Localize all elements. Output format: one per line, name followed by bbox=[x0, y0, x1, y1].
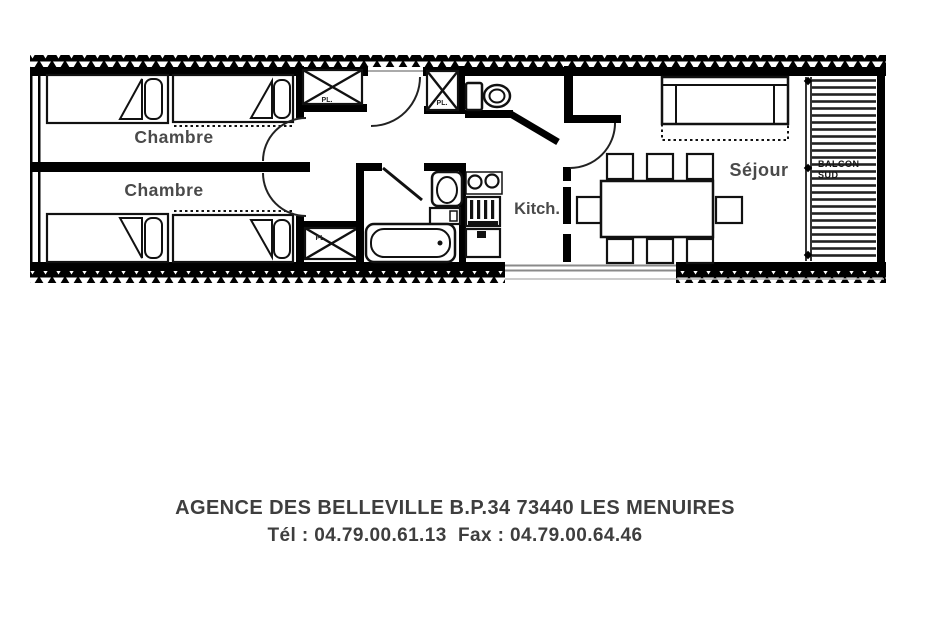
chair bbox=[647, 154, 673, 179]
chair bbox=[607, 154, 633, 179]
kitchen: Kitch. bbox=[466, 167, 571, 262]
closet-top-left: PL. bbox=[297, 70, 367, 112]
bed-icon bbox=[47, 214, 168, 262]
table bbox=[601, 181, 713, 237]
bathroom bbox=[356, 163, 466, 262]
agency-address: AGENCE DES BELLEVILLE B.P.34 73440 LES M… bbox=[0, 497, 925, 520]
door-arc bbox=[263, 173, 306, 216]
bedroom-top: Chambre bbox=[47, 75, 293, 147]
chair bbox=[687, 239, 713, 263]
closet-bottom: PL. bbox=[297, 221, 364, 259]
closet-label: PL. bbox=[322, 97, 333, 104]
closet-top-right: PL. bbox=[424, 66, 465, 114]
entry-door-arc bbox=[371, 77, 420, 126]
bathtub-icon bbox=[366, 224, 455, 262]
bedroom-bottom-label: Chambre bbox=[124, 180, 203, 200]
kitchen-label: Kitch. bbox=[514, 200, 560, 218]
living-room-label: Séjour bbox=[729, 160, 788, 180]
living-room: Séjour bbox=[577, 77, 789, 263]
bed-icon bbox=[47, 75, 168, 123]
bedroom-top-label: Chambre bbox=[134, 127, 213, 147]
door-arc bbox=[263, 118, 306, 161]
balcony: BALCON SUD bbox=[804, 77, 876, 261]
sink-burners-icon bbox=[466, 172, 502, 194]
door-leaf bbox=[383, 168, 422, 200]
balcony-decking bbox=[812, 77, 876, 261]
page: Chambre Chambre PL. bbox=[0, 0, 940, 627]
toilet-icon bbox=[466, 83, 510, 110]
wc bbox=[465, 83, 558, 142]
entry-hall bbox=[564, 66, 621, 168]
sofa-icon bbox=[662, 77, 788, 140]
chair bbox=[607, 239, 633, 263]
closet-label: PL. bbox=[437, 100, 448, 107]
stove-icon bbox=[466, 197, 500, 226]
floor-plan: Chambre Chambre PL. bbox=[0, 0, 940, 360]
fridge-icon bbox=[466, 229, 500, 257]
agency-phone-fax: Tél : 04.79.00.61.13 Fax : 04.79.00.64.4… bbox=[0, 525, 925, 547]
balcony-label-line1: BALCON bbox=[818, 159, 860, 169]
chair bbox=[716, 197, 742, 223]
closet-label: PL. bbox=[316, 235, 327, 242]
bidet-icon bbox=[430, 208, 460, 224]
chair bbox=[577, 197, 601, 223]
bed-icon bbox=[173, 211, 293, 262]
chair bbox=[687, 154, 713, 179]
bed-icon bbox=[173, 75, 293, 126]
balcony-label-line2: SUD bbox=[818, 170, 839, 180]
footer: AGENCE DES BELLEVILLE B.P.34 73440 LES M… bbox=[0, 497, 925, 547]
chair bbox=[647, 239, 673, 263]
dining-table bbox=[577, 154, 742, 263]
bedroom-bottom: Chambre bbox=[47, 180, 293, 262]
washbasin-icon bbox=[432, 172, 462, 206]
